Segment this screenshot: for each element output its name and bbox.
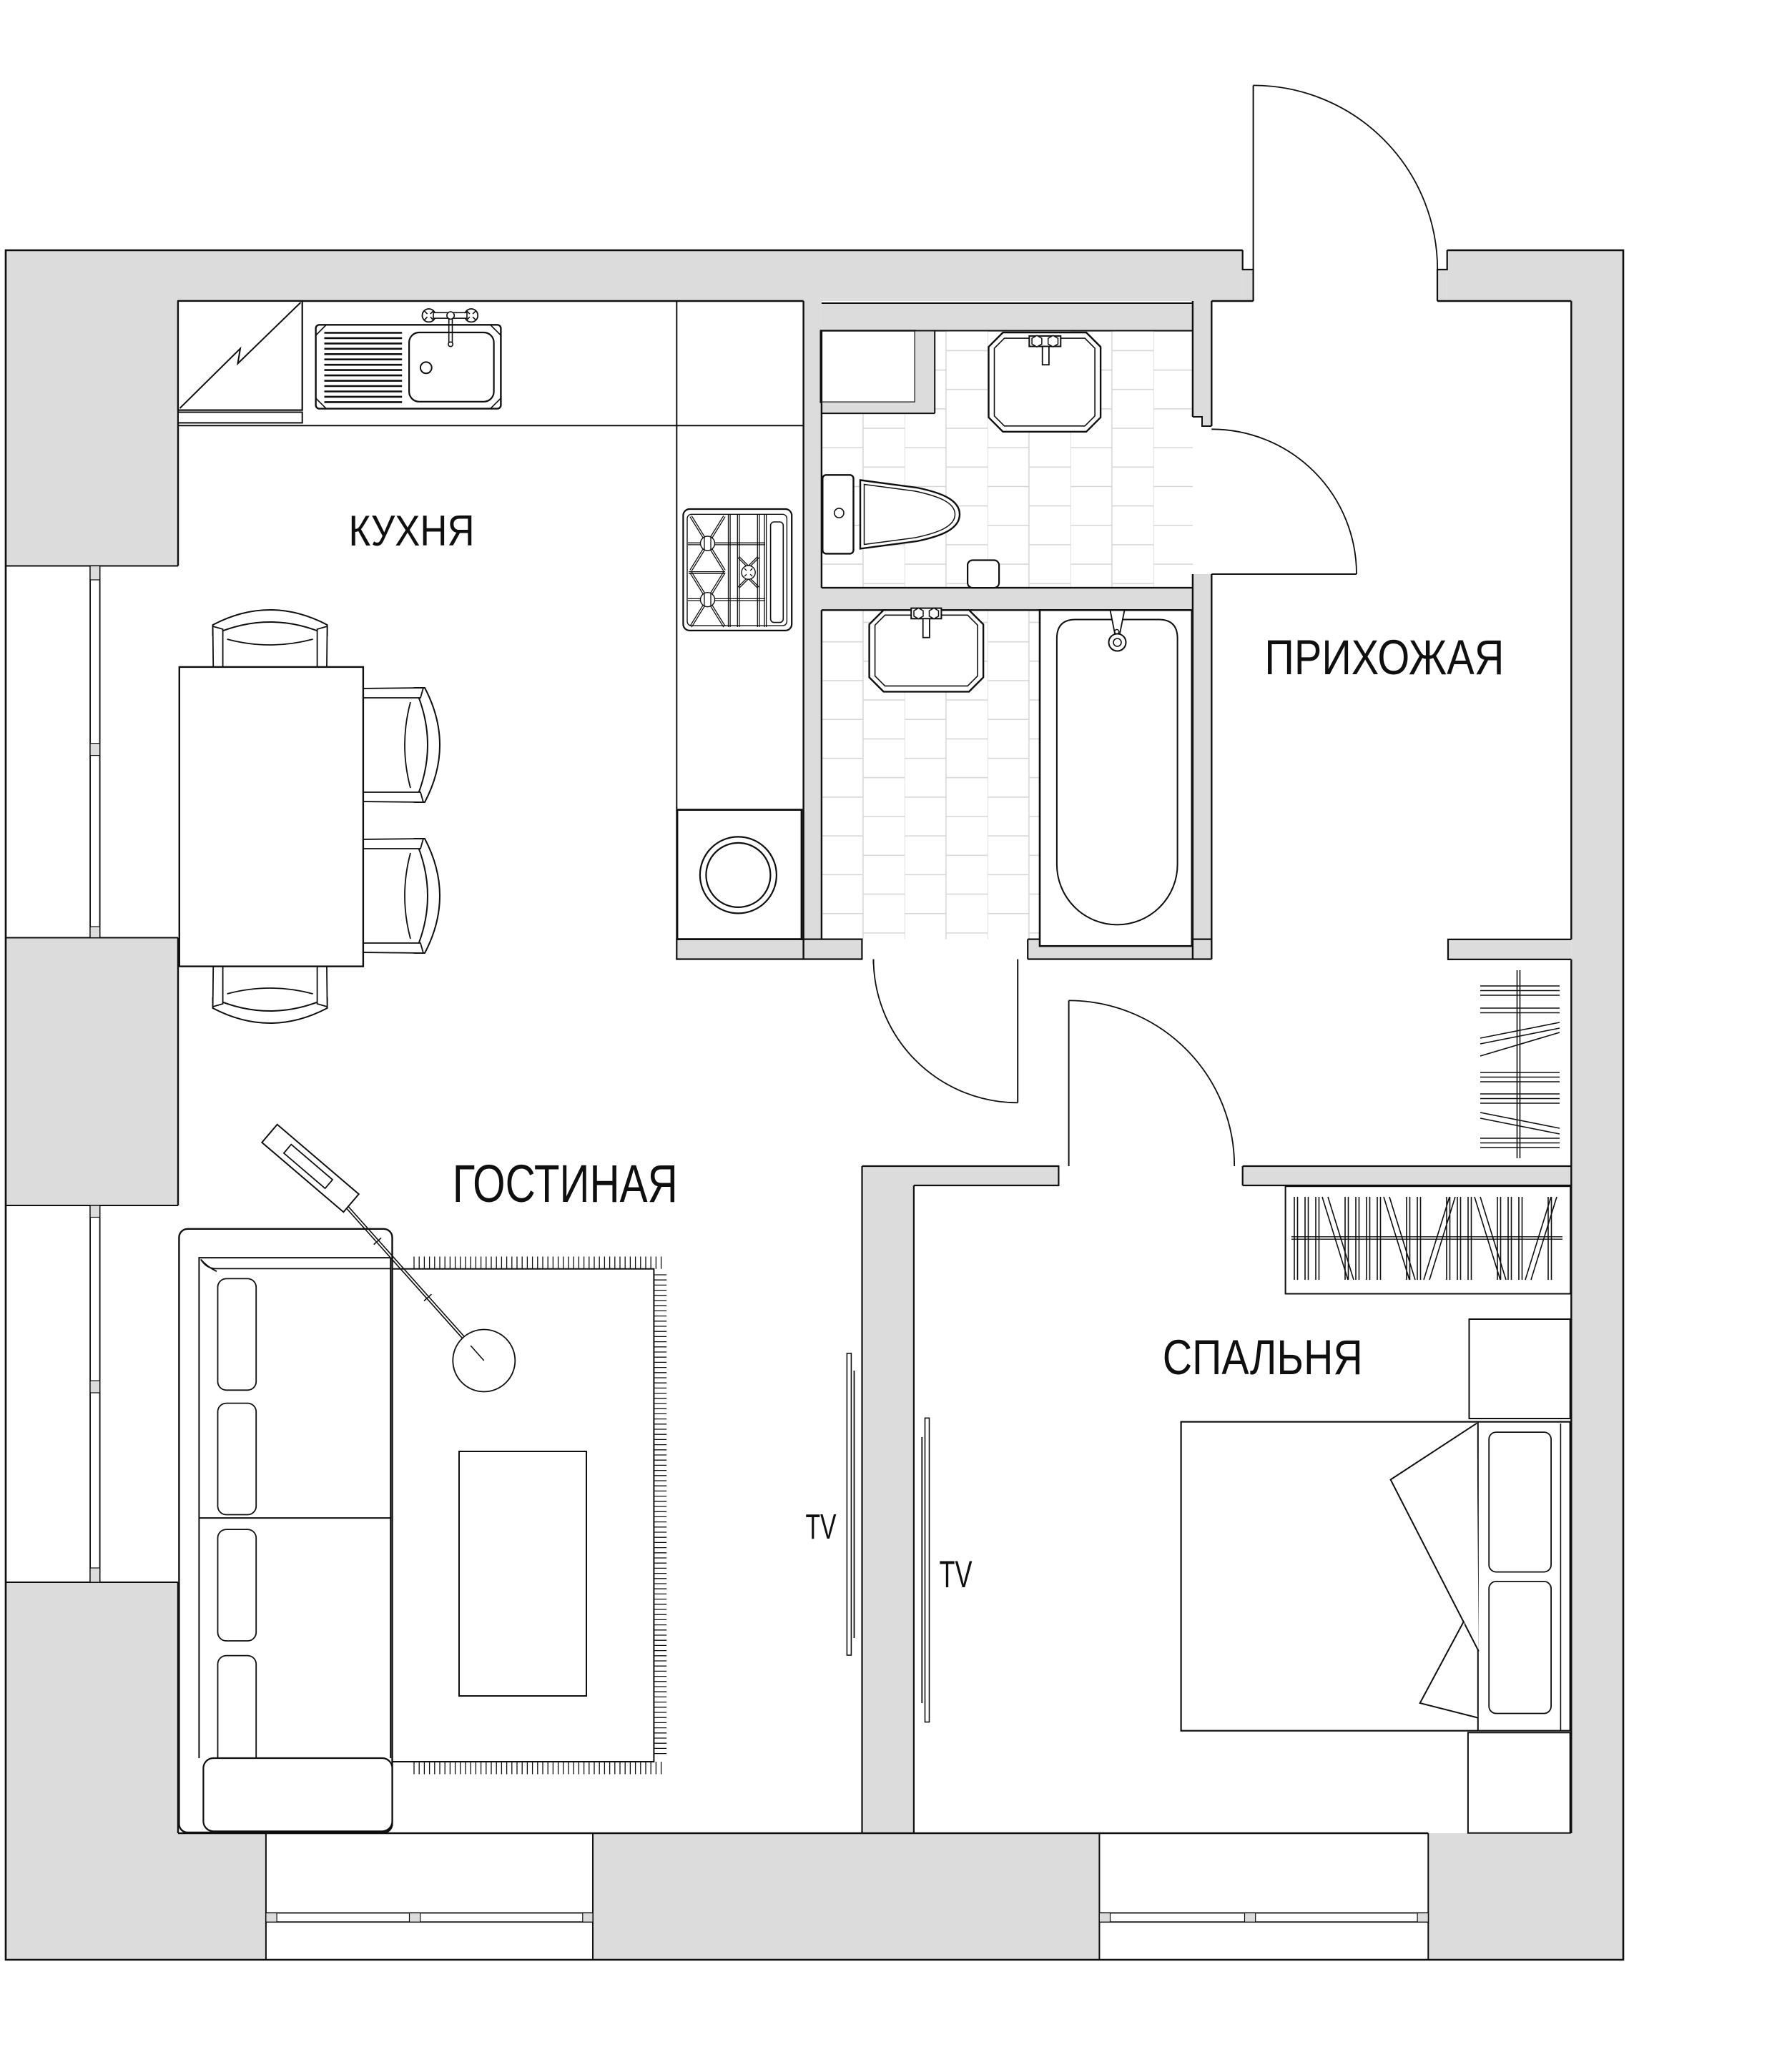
- svg-text:СПАЛЬНЯ: СПАЛЬНЯ: [1163, 1330, 1363, 1385]
- svg-text:КУХНЯ: КУХНЯ: [349, 507, 475, 555]
- svg-text:TV: TV: [806, 1508, 837, 1546]
- svg-text:ПРИХОЖАЯ: ПРИХОЖАЯ: [1264, 630, 1504, 685]
- svg-text:ГОСТИНАЯ: ГОСТИНАЯ: [453, 1154, 678, 1213]
- svg-text:TV: TV: [940, 1554, 973, 1596]
